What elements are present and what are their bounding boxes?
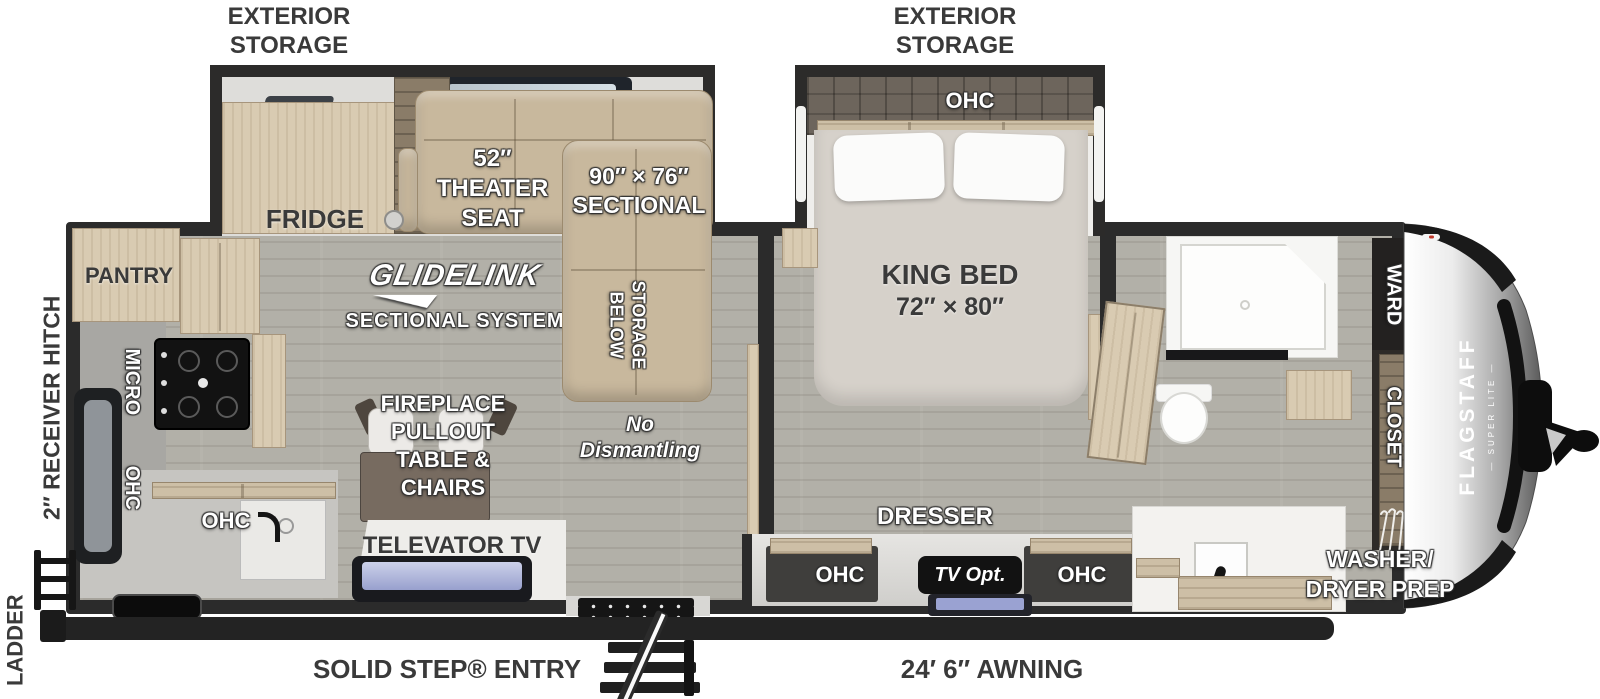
dresser-ohc-left-label: OHC [780, 562, 900, 588]
entry-step-stowed [578, 598, 694, 618]
glidelink-logo: GLIDELINK SECTIONAL SYSTEM [330, 258, 580, 334]
glidelink-brand: GLIDELINK [327, 258, 583, 293]
vanity-shelf [1136, 558, 1180, 578]
kitchen-ohc-label: OHC [186, 508, 266, 534]
hitch-jack-icon [1518, 380, 1599, 472]
tv-opt-label: TV Opt. [934, 564, 1005, 587]
solid-step-label: SOLID STEP® ENTRY [292, 654, 602, 685]
sink-dial [278, 518, 294, 534]
fireplace-label: FIREPLACE PULLOUT TABLE & CHAIRS [352, 390, 534, 502]
tv-opt-badge: TV Opt. [918, 556, 1022, 594]
dresser-ohc-right-label: OHC [1022, 562, 1142, 588]
kitchen-upper-cabinet [180, 238, 260, 334]
slide-window-right [1094, 106, 1104, 202]
shower-drain [1240, 300, 1250, 310]
televator-label: TELEVATOR TV [332, 532, 572, 561]
ladder-icon [34, 550, 76, 610]
partition-wood-trim [747, 344, 759, 562]
awning-rail [54, 617, 1334, 640]
glidelink-subtitle: SECTIONAL SYSTEM [330, 310, 580, 334]
washer-dryer-label: WASHER/ DRYER PREP [1268, 544, 1492, 604]
floorplan-canvas: GLIDELINK SECTIONAL SYSTEM FIREPLACE PUL… [0, 0, 1600, 699]
pillow [953, 132, 1065, 202]
awning-label: 24′ 6″ AWNING [858, 654, 1126, 685]
receiver-hitch-label: 2″ RECEIVER HITCH [20, 376, 84, 440]
ladder-label: LADDER [0, 608, 48, 672]
burner [178, 396, 200, 418]
ohc-cabinet-right-top [1030, 538, 1132, 554]
kitchen-tall-cabinet [252, 334, 286, 448]
exterior-storage-label-right: EXTERIOR STORAGE [842, 2, 1068, 60]
toilet [1160, 392, 1208, 444]
partition-wall [758, 236, 774, 562]
burner [216, 396, 238, 418]
storage-below-label: STORAGE BELOW [577, 275, 677, 375]
king-bed-label: KING BED 72″ × 80″ [842, 258, 1058, 322]
entry-steps [598, 640, 702, 698]
sectional-label: 90″ × 76″ SECTIONAL [548, 162, 730, 220]
kitchen-ohc-wall-label: OHC [99, 456, 163, 520]
bed-ohc-label: OHC [905, 88, 1035, 114]
ohc-cabinet-left-top [770, 538, 872, 554]
bath-cabinet [1286, 370, 1352, 420]
sink-overhead-shelf [152, 482, 336, 499]
burner [178, 350, 200, 372]
micro-label: MICRO [99, 350, 163, 414]
pillow [833, 132, 945, 202]
dresser-label: DRESSER [835, 503, 1035, 531]
exterior-storage-label-left: EXTERIOR STORAGE [176, 2, 402, 60]
no-dismantling-note: No Dismantling [565, 412, 715, 464]
slide-window-left [796, 106, 806, 202]
burner-center [198, 378, 208, 388]
super-lite-logo: — SUPER LITE — [1487, 361, 1496, 470]
burner [216, 350, 238, 372]
pantry-label: PANTRY [74, 263, 184, 289]
fridge-label: FRIDGE [222, 204, 408, 235]
glidelink-swoosh-icon [363, 295, 437, 308]
cooktop [154, 338, 250, 430]
shower-threshold [1166, 350, 1288, 360]
flagstaff-logo: FLAGSTAFF [1456, 336, 1479, 495]
nightstand [782, 228, 818, 268]
dresser-tv-screen [936, 598, 1024, 610]
televator-tv-screen [362, 562, 522, 590]
